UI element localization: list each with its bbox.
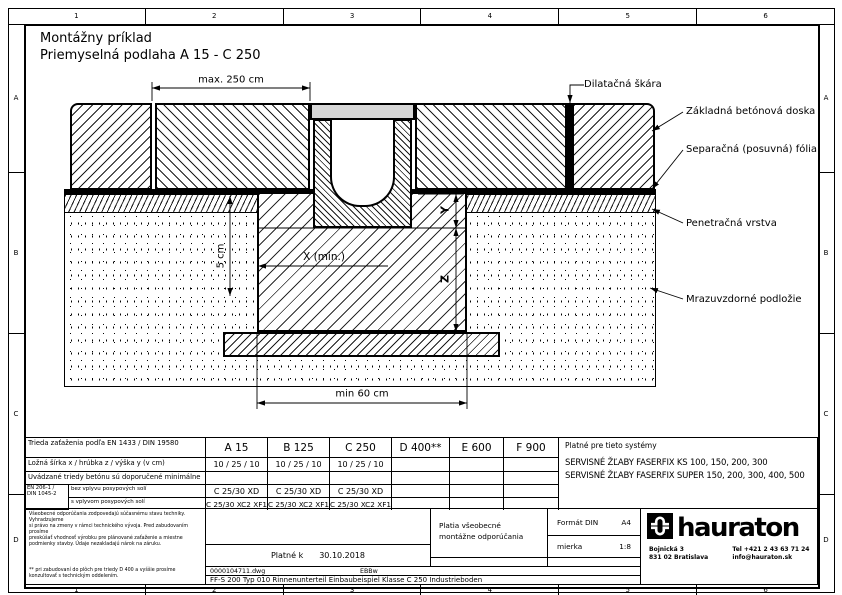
- doc-title: FF-S 200 Typ 010 Rinnenunterteil Einbaub…: [210, 576, 482, 584]
- brand-address-line: 831 02 Bratislava: [649, 554, 708, 562]
- format-cell: Formát DIN A4: [548, 509, 641, 536]
- empty-cell: [431, 558, 548, 567]
- empty-cell: [206, 509, 431, 545]
- table-row-label: Trieda zaťaženia podľa EN 1433 / DIN 195…: [25, 438, 206, 458]
- concrete-label-block: EN 206-1 / DIN 1045-2 bez vplyvu posypov…: [25, 485, 206, 510]
- table-cell-empty: [206, 472, 268, 485]
- disclaimer-line: podmienky stavby. Údaje nezakladajú náro…: [29, 542, 201, 548]
- table-cell-empty: [450, 472, 504, 485]
- dim-label-x-min: X (min.): [303, 251, 345, 263]
- scale-value: 1:8: [619, 542, 631, 551]
- brand-address-line: Bojnická 3: [649, 546, 708, 554]
- table-cell: 10 / 25 / 10: [330, 458, 392, 472]
- general-note-cell: Platia všeobecné montážne odporúčania: [431, 509, 548, 558]
- sheet-title-line2: Priemyselná podlaha A 15 - C 250: [40, 47, 261, 64]
- load-class-header: A 15: [206, 438, 268, 458]
- sheet-title: Montážny príklad Priemyselná podlaha A 1…: [40, 30, 261, 64]
- general-note-line: Platia všeobecné: [439, 521, 547, 532]
- table-cell: 10 / 25 / 10: [206, 458, 268, 472]
- format-value: A4: [621, 518, 631, 527]
- footnote-line: konzultovať s technickým oddelením.: [29, 574, 203, 580]
- table-cell-empty: [392, 472, 450, 485]
- table-row-label: Uvádzané triedy betónu sú doporučené min…: [25, 472, 206, 485]
- disclaimer-cell: Všeobecné odporúčania zodpovedajú súčasn…: [25, 509, 206, 584]
- table-cell-empty: [392, 458, 450, 472]
- systems-line: SERVISNÉ ŽĽABY FASERFIX KS 100, 150, 200…: [565, 457, 812, 470]
- file-row: 0000104711.dwg EBBw: [206, 567, 641, 576]
- load-class-header: C 250: [330, 438, 392, 458]
- ruler-tick: D: [818, 495, 834, 585]
- norm-cell: EN 206-1 / DIN 1045-2: [25, 485, 69, 510]
- callout-subbase: Mrazuvzdorné podložie: [686, 294, 802, 305]
- systems-line: SERVISNÉ ŽĽABY FASERFIX SUPER 150, 200, …: [565, 470, 812, 483]
- table-cell-empty: [450, 485, 504, 498]
- sheet-title-line1: Montážny príklad: [40, 30, 261, 47]
- valid-label: Platné k: [271, 551, 303, 560]
- ruler-tick: B: [818, 173, 834, 334]
- hauraton-logo-icon: [647, 513, 673, 543]
- disclaimer-line: si právo na zmeny v rámci technického vý…: [29, 524, 201, 536]
- table-cell: C 25/30 XD: [206, 485, 268, 498]
- ruler-tick: 6: [697, 8, 834, 24]
- ruler-band-left: A B C D: [8, 24, 24, 585]
- table-cell-empty: [504, 458, 559, 472]
- dim-label-y: Y: [439, 206, 452, 214]
- table-cell-empty: [330, 472, 392, 485]
- callout-primer: Penetračná vrstva: [686, 218, 777, 229]
- slab-block: [415, 103, 567, 190]
- slab-block: [155, 103, 310, 190]
- ruler-tick: 2: [146, 8, 284, 24]
- file-name: 0000104711.dwg: [206, 568, 360, 575]
- systems-cell: Platné pre tieto systémy SERVISNÉ ŽĽABY …: [559, 438, 819, 510]
- table-cell-empty: [504, 485, 559, 498]
- load-class-header: B 125: [268, 438, 330, 458]
- ruler-tick: 5: [559, 8, 697, 24]
- ruler-tick: B: [8, 173, 24, 334]
- table-row-label: Ložná šírka x / hrúbka z / výška y (v cm…: [25, 458, 206, 472]
- drawing-sheet: 1 2 3 4 5 6 A B C D A B C D 1 2 3 4 5 6 …: [0, 0, 842, 595]
- channel-grating: [310, 103, 415, 120]
- ruler-band-right: A B C D: [818, 24, 834, 585]
- scale-label: mierka: [557, 542, 582, 551]
- table-cell-empty: [268, 472, 330, 485]
- ruler-tick: 4: [421, 8, 559, 24]
- ruler-tick: A: [818, 24, 834, 173]
- dim-label-5cm: 5 cm: [216, 244, 227, 269]
- author-initials: EBBw: [360, 568, 378, 575]
- doc-title-row: FF-S 200 Typ 010 Rinnenunterteil Einbaub…: [206, 576, 641, 584]
- slab-block: [70, 103, 152, 190]
- table-cell: 10 / 25 / 10: [268, 458, 330, 472]
- table-cell: C 25/30 XD: [330, 485, 392, 498]
- disclaimer-line: Všeobecné odporúčania zodpovedajú súčasn…: [29, 512, 201, 524]
- ruler-tick: D: [8, 495, 24, 585]
- brand-phone: Tel +421 2 43 63 71 24: [732, 546, 809, 554]
- dim-label-min-60: min 60 cm: [335, 389, 388, 400]
- brand-cell: hauraton Bojnická 3 831 02 Bratislava Te…: [641, 509, 818, 584]
- callout-separation-foil: Separačná (posuvná) fólia: [686, 144, 817, 155]
- general-note-line: montážne odporúčania: [439, 532, 547, 543]
- ruler-tick: 1: [8, 8, 146, 24]
- brand-wordmark: hauraton: [677, 515, 799, 541]
- valid-date-cell: Platné k 30.10.2018: [206, 545, 431, 567]
- valid-date: 30.10.2018: [319, 551, 365, 560]
- scale-cell: mierka 1:8: [548, 536, 641, 558]
- norm-line: DIN 1045-2: [27, 492, 66, 498]
- load-class-header: F 900: [504, 438, 559, 458]
- load-class-header: D 400**: [392, 438, 450, 458]
- channel-cavity: [330, 119, 395, 207]
- concrete-row-label: bez vplyvu posypových solí: [69, 485, 206, 498]
- ruler-tick: C: [818, 334, 834, 495]
- table-cell-empty: [392, 485, 450, 498]
- table-cell: C 25/30 XD: [268, 485, 330, 498]
- load-class-table: Platné pre tieto systémy SERVISNÉ ŽĽABY …: [24, 437, 818, 509]
- load-class-header: E 600: [450, 438, 504, 458]
- ruler-tick: A: [8, 24, 24, 173]
- ruler-tick: 3: [284, 8, 422, 24]
- callout-base-slab: Základná betónová doska: [686, 106, 815, 117]
- brand-email: info@hauraton.sk: [732, 554, 809, 562]
- format-label: Formát DIN: [557, 518, 598, 527]
- table-cell-empty: [504, 472, 559, 485]
- dim-label-joint-spacing: max. 250 cm: [198, 75, 264, 86]
- empty-cell: [548, 558, 641, 567]
- table-cell-empty: [450, 458, 504, 472]
- systems-title: Platné pre tieto systémy: [565, 441, 812, 450]
- dim-label-z: Z: [439, 275, 452, 283]
- slab-block: [572, 103, 655, 190]
- blinding-concrete: [223, 332, 500, 357]
- ruler-tick: C: [8, 334, 24, 495]
- ruler-band-top: 1 2 3 4 5 6: [8, 8, 834, 25]
- callout-expansion-joint: Dilatačná škára: [584, 79, 662, 90]
- title-block: Všeobecné odporúčania zodpovedajú súčasn…: [24, 509, 818, 585]
